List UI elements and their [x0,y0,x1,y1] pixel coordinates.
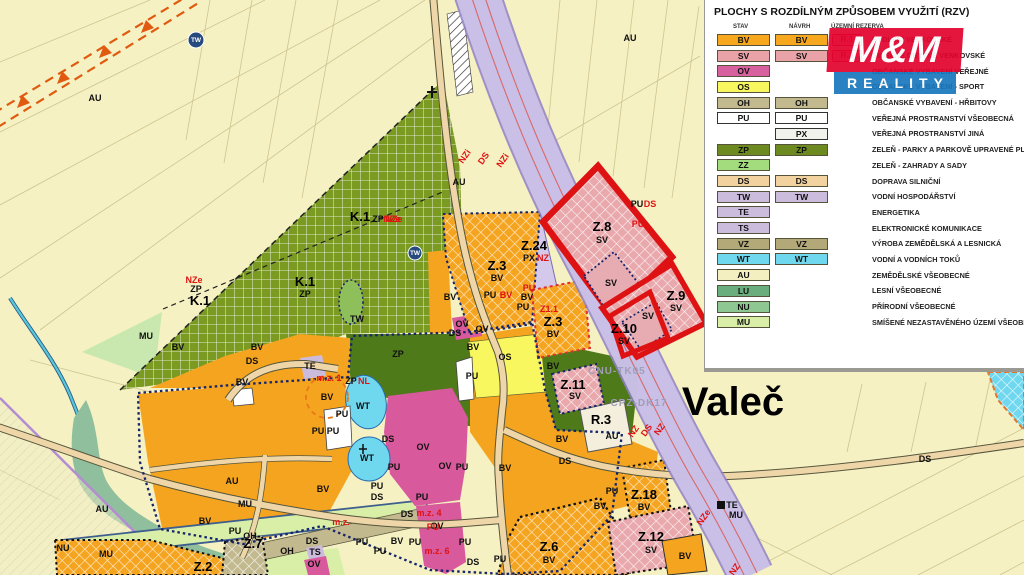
map-label-ZP: ZP [299,289,311,299]
map-label-Z.8: Z.8 [593,219,612,234]
map-label-BV: BV [521,292,534,302]
map-label-DS: DS [559,456,572,466]
map-label-TW: TW [191,37,202,44]
map-label-SV: SV [618,336,630,346]
map-label-BV: BV [317,484,330,494]
swatch-navrh-OH: OH [775,97,828,109]
map-label-TS: TS [309,547,321,557]
map-label-BV: BV [172,342,185,352]
map-label-AU: AU [624,33,637,43]
swatch-stav-ZZ: ZZ [717,159,770,171]
mm-reality-logo[interactable]: M&M REALITY [828,28,962,94]
zoning-map-screenshot: ValečZ.8SVZ.9SVZ.10SVSVSVZ.3BVZ.3BVZ1.1Z… [0,0,1024,575]
swatch-navrh-BV: BV [775,34,828,46]
map-label-CPZ-DK17: CPZ-DK17 [611,398,668,409]
map-label-TW: TW [410,250,421,257]
legend-row-NU: NUPŘÍRODNÍ VŠEOBECNÉ [705,299,1024,315]
map-label-DS: DS [246,356,259,366]
map-label-NU: NU [57,543,70,553]
map-label-PU: PU [517,302,530,312]
map-label-BV: BV [500,290,513,300]
map-label-PU: PU [229,526,242,536]
map-label-BV: BV [543,555,556,565]
legend-row-AU: AUZEMĚDĚLSKÉ VŠEOBECNÉ [705,267,1024,283]
map-label-MU: MU [238,499,252,509]
legend-row-ZZ: ZZZELEŇ - ZAHRADY A SADY [705,158,1024,174]
map-label-PX: PX [523,253,535,263]
swatch-stav-OV: OV [717,65,770,77]
map-label-TE: TE [726,500,738,510]
map-label-BV: BV [236,377,249,387]
map-label-DS: DS [449,328,462,338]
map-label-PU: PU [494,554,507,564]
map-label-Vale-: Valeč [682,380,784,424]
legend-label-AU: ZEMĚDĚLSKÉ VŠEOBECNÉ [872,271,970,280]
legend-row-TS: TSELEKTRONICKÉ KOMUNIKACE [705,220,1024,236]
legend-label-PU: VEŘEJNÁ PROSTRANSTVÍ VŠEOBECNÁ [872,114,1014,123]
map-label-Z.18: Z.18 [631,487,657,502]
map-label-BV: BV [679,551,692,561]
map-label-PU: PU [459,537,472,547]
map-label-OV: OV [475,324,488,334]
swatch-navrh-VZ: VZ [775,238,828,250]
map-label-CNU-TK05: CNU-TK05 [588,366,645,377]
swatch-stav-ZP: ZP [717,144,770,156]
map-label-PU: PU [606,486,619,496]
legend-label-PX: VEŘEJNÁ PROSTRANSTVÍ JINÁ [872,129,984,138]
map-label-OH: OH [243,531,257,541]
legend-label-VZ: VÝROBA ZEMĚDĚLSKÁ A LESNICKÁ [872,239,1001,248]
swatch-stav-VZ: VZ [717,238,770,250]
map-label-K.1: K.1 [295,274,315,289]
map-label-PU: PU [466,371,479,381]
swatch-stav-OS: OS [717,81,770,93]
map-label-SV: SV [645,545,657,555]
legend-row-WT: WTWTVODNÍ A VODNÍCH TOKŮ [705,252,1024,268]
map-label-SV: SV [642,311,654,321]
map-label-Z.9: Z.9 [667,288,686,303]
map-label-NZ: NZ [537,253,549,263]
te-point-symbol [717,501,725,509]
map-label-BV: BV [391,536,404,546]
map-label-DS: DS [382,434,395,444]
map-label-PU: PU [523,283,536,293]
legend-label-NU: PŘÍRODNÍ VŠEOBECNÉ [872,302,956,311]
map-label-K.1: K.1 [190,293,210,308]
map-label-PU: PU [327,426,340,436]
swatch-stav-TE: TE [717,206,770,218]
legend-row-LU: LULESNÍ VŠEOBECNÉ [705,283,1024,299]
map-label-BV: BV [638,502,651,512]
map-label-Z.2: Z.2 [194,559,213,574]
map-label-DS: DS [306,536,319,546]
map-label-OV: OV [438,461,451,471]
swatch-stav-TW: TW [717,191,770,203]
legend-label-MU: SMÍŠENÉ NEZASTAVĚNÉHO ÚZEMÍ VŠEOBECNÉ [872,318,1024,327]
legend-label-DS: DOPRAVA SILNIČNÍ [872,177,940,186]
map-label-ZP: ZP [190,284,202,294]
map-label-OS: OS [498,352,511,362]
legend-title: PLOCHY S ROZDÍLNÝM ZPŮSOBEM VYUŽITÍ (RZV… [705,0,1024,18]
map-label-Z.10: Z.10 [611,321,637,336]
legend-row-VZ: VZVZVÝROBA ZEMĚDĚLSKÁ A LESNICKÁ [705,236,1024,252]
map-label-PU: PU [388,462,401,472]
swatch-stav-WT: WT [717,253,770,265]
map-label-BV: BV [499,463,512,473]
map-label-BV: BV [556,434,569,444]
map-label-BV: BV [547,329,560,339]
map-label-Z.12: Z.12 [638,529,664,544]
map-label-Z1.1: Z1.1 [540,304,558,314]
swatch-stav-TS: TS [717,222,770,234]
legend-row-OH: OHOHOBČANSKÉ VYBAVENÍ - HŘBITOVY [705,95,1024,111]
map-label-WT: WT [356,401,370,411]
map-label-ZP: ZP [392,349,404,359]
map-label-DS: DS [644,199,657,209]
map-label-MU: MU [99,549,113,559]
legend-row-MU: MUSMÍŠENÉ NEZASTAVĚNÉHO ÚZEMÍ VŠEOBECNÉ [705,314,1024,330]
map-label-AU: AU [453,177,466,187]
map-label-PU: PU [371,481,384,491]
map-label-SV: SV [605,278,617,288]
map-label-AU: AU [606,431,619,441]
swatch-stav-PU: PU [717,112,770,124]
legend-label-ZP: ZELEŇ - PARKY A PARKOVĚ UPRAVENÉ PLOCHY [872,145,1024,154]
swatch-navrh-TW: TW [775,191,828,203]
map-label-SV: SV [569,391,581,401]
map-label-PU: PU [484,290,497,300]
legend-label-OH: OBČANSKÉ VYBAVENÍ - HŘBITOVY [872,98,997,107]
map-label-PU: PU [312,426,325,436]
legend-row-PX: PXVEŘEJNÁ PROSTRANSTVÍ JINÁ [705,126,1024,142]
map-label-PU: PU [374,546,387,556]
map-label-PU: PU [427,522,440,532]
map-label-m.z.-1: m.z. 1 [316,373,341,383]
legend-row-DS: DSDSDOPRAVA SILNIČNÍ [705,173,1024,189]
swatch-navrh-SV: SV [775,50,828,62]
map-label-DS: DS [371,492,384,502]
map-label-PU: PU [409,537,422,547]
legend-row-TE: TEENERGETIKA [705,205,1024,221]
map-label-PU: PU [631,199,644,209]
map-label-NZe: NZe [185,275,202,285]
column-header-navrh: NÁVRH [789,24,810,30]
map-label-R.3: R.3 [591,412,611,427]
swatch-stav-MU: MU [717,316,770,328]
map-label-MU: MU [729,510,743,520]
map-label-BV: BV [251,342,264,352]
swatch-stav-DS: DS [717,175,770,187]
map-label-ZP: ZP [372,214,384,224]
legend-label-LU: LESNÍ VŠEOBECNÉ [872,286,941,295]
legend-row-ZP: ZPZPZELEŇ - PARKY A PARKOVĚ UPRAVENÉ PLO… [705,142,1024,158]
map-label-AU: AU [89,93,102,103]
swatch-navrh-WT: WT [775,253,828,265]
map-label-BV: BV [547,361,560,371]
map-label-PU: PU [356,537,369,547]
map-label-BV: BV [594,501,607,511]
swatch-stav-SV: SV [717,50,770,62]
logo-mm-text: M&M [826,28,963,72]
map-label-SV: SV [596,235,608,245]
map-label-PU: PU [632,219,645,229]
map-label-m.z.: m.z. [332,517,350,527]
map-label-ZP: ZP [345,376,357,386]
legend-row-PU: PUPUVEŘEJNÁ PROSTRANSTVÍ VŠEOBECNÁ [705,110,1024,126]
map-label-OH: OH [280,546,294,556]
map-label-m.z.-6: m.z. 6 [424,546,449,556]
map-label-WT: WT [360,453,374,463]
legend-label-ZZ: ZELEŇ - ZAHRADY A SADY [872,161,967,170]
swatch-stav-AU: AU [717,269,770,281]
map-label-PU: PU [456,462,469,472]
logo-reality-text: REALITY [834,72,956,94]
map-label-Z.11: Z.11 [560,377,585,392]
swatch-navrh-PU: PU [775,112,828,124]
legend-label-TW: VODNÍ HOSPODÁŘSTVÍ [872,192,956,201]
map-label-NZe: NZe [383,214,400,224]
swatch-stav-BV: BV [717,34,770,46]
map-label-m.z.-4: m.z. 4 [416,508,441,518]
map-label-Z.24: Z.24 [521,238,548,253]
column-header-stav: STAV [733,24,748,30]
map-label-DS: DS [467,557,480,567]
map-label-BV: BV [444,292,457,302]
map-label-TW: TW [350,314,364,324]
swatch-stav-OH: OH [717,97,770,109]
map-label-AU: AU [96,504,109,514]
map-label-AU: AU [226,476,239,486]
map-label-PU: PU [416,492,429,502]
swatch-stav-LU: LU [717,285,770,297]
map-label-Z.6: Z.6 [540,539,559,554]
swatch-navrh-DS: DS [775,175,828,187]
map-label-OV: OV [416,442,429,452]
legend-label-WT: VODNÍ A VODNÍCH TOKŮ [872,255,960,264]
swatch-navrh-PX: PX [775,128,828,140]
legend-label-TE: ENERGETIKA [872,208,920,217]
map-label-K.1: K.1 [350,209,370,224]
map-label-MU: MU [139,331,153,341]
map-label-Z.3: Z.3 [544,314,563,329]
map-label-Z.3: Z.3 [488,258,507,273]
map-label-PU: PU [336,409,349,419]
swatch-navrh-ZP: ZP [775,144,828,156]
map-label-BV: BV [491,273,504,283]
map-label-NL: NL [358,376,370,386]
map-label-OV: OV [307,559,320,569]
map-label-DS: DS [401,509,414,519]
legend-label-TS: ELEKTRONICKÉ KOMUNIKACE [872,224,982,233]
legend-row-TW: TWTWVODNÍ HOSPODÁŘSTVÍ [705,189,1024,205]
map-label-BV: BV [467,342,480,352]
swatch-stav-NU: NU [717,301,770,313]
map-label-DS: DS [919,454,932,464]
map-label-BV: BV [199,516,212,526]
map-label-SV: SV [670,303,682,313]
map-label-BV: BV [321,392,334,402]
map-label-TE: TE [304,361,316,371]
